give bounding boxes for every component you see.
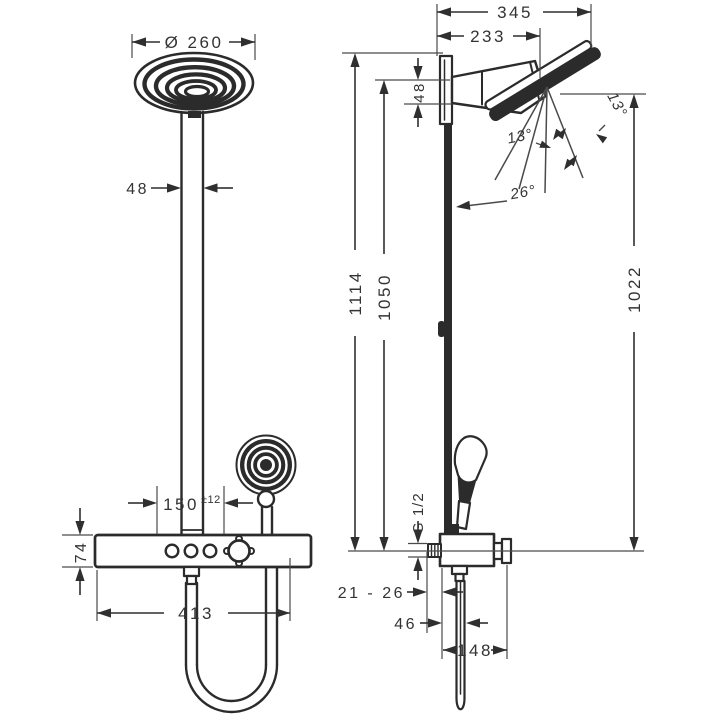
bar-angle-label: 26° [508,182,537,203]
dim-connection-thread: G 1/2 [408,492,427,580]
side-view: 13° 13° 26° [338,3,646,709]
pipe-width-label: 48 [126,181,149,198]
front-view: Ø 260 48 150 ±12 [62,33,311,712]
dim-depth-total: 345 [437,3,591,56]
hand-shower-holder-ring [258,491,274,507]
head-angle-upper-label: 13° [506,126,535,148]
hose-offset-label: 46 [394,616,417,633]
arm-thickness-label: 48 [411,81,428,103]
hand-shower-front [237,436,296,536]
dim-mixer-height: 74 [62,508,93,595]
head-neck [188,111,201,118]
connection-thread-label: G 1/2 [410,492,427,534]
hand-shower-side [451,436,487,537]
height-spray-label: 1022 [625,265,644,313]
wall-plate-side [440,56,452,124]
dim-hose-offset: 46 [394,616,488,633]
head-diameter-label: Ø 260 [165,33,224,52]
select-button-2 [185,545,198,558]
dim-hand-shower-offset: 150 ±12 [128,486,253,534]
dim-height-bar: 1050 [375,80,450,551]
wall-bar-side [444,57,452,537]
shower-system-technical-drawing: Ø 260 48 150 ±12 [0,0,720,720]
hose-outlet-front [184,567,199,576]
shower-pipe-front [182,112,204,535]
hand-shower-offset-tolerance-label: ±12 [201,494,221,506]
dim-depth-lower: 148 [443,565,507,660]
depth-total-label: 345 [497,3,533,22]
overhead-shower-front [135,53,253,118]
thermostat-side [428,534,511,581]
hand-shower-offset-label: 150 [163,495,199,514]
mixer-width-label: 413 [178,604,214,623]
select-button-3 [204,545,217,558]
thermostat-bar-front [95,535,311,584]
mixer-height-label: 74 [73,541,90,564]
depth-lower-label: 148 [457,641,493,660]
drawing-svg: Ø 260 48 150 ±12 [0,0,720,720]
wall-distance-label: 21 - 26 [338,585,405,602]
depth-head-pivot-label: 233 [470,27,506,46]
dim-head-diameter: Ø 260 [132,33,255,60]
height-total-label: 1114 [346,270,365,315]
dim-pipe-width: 48 [126,181,233,198]
shower-hose-front [186,567,277,712]
dim-wall-distance: 21 - 26 [338,552,463,659]
height-bar-label: 1050 [375,273,394,321]
select-button-1 [166,545,179,558]
slider-holder-side [438,321,445,337]
hose-outlet-side [452,566,467,574]
